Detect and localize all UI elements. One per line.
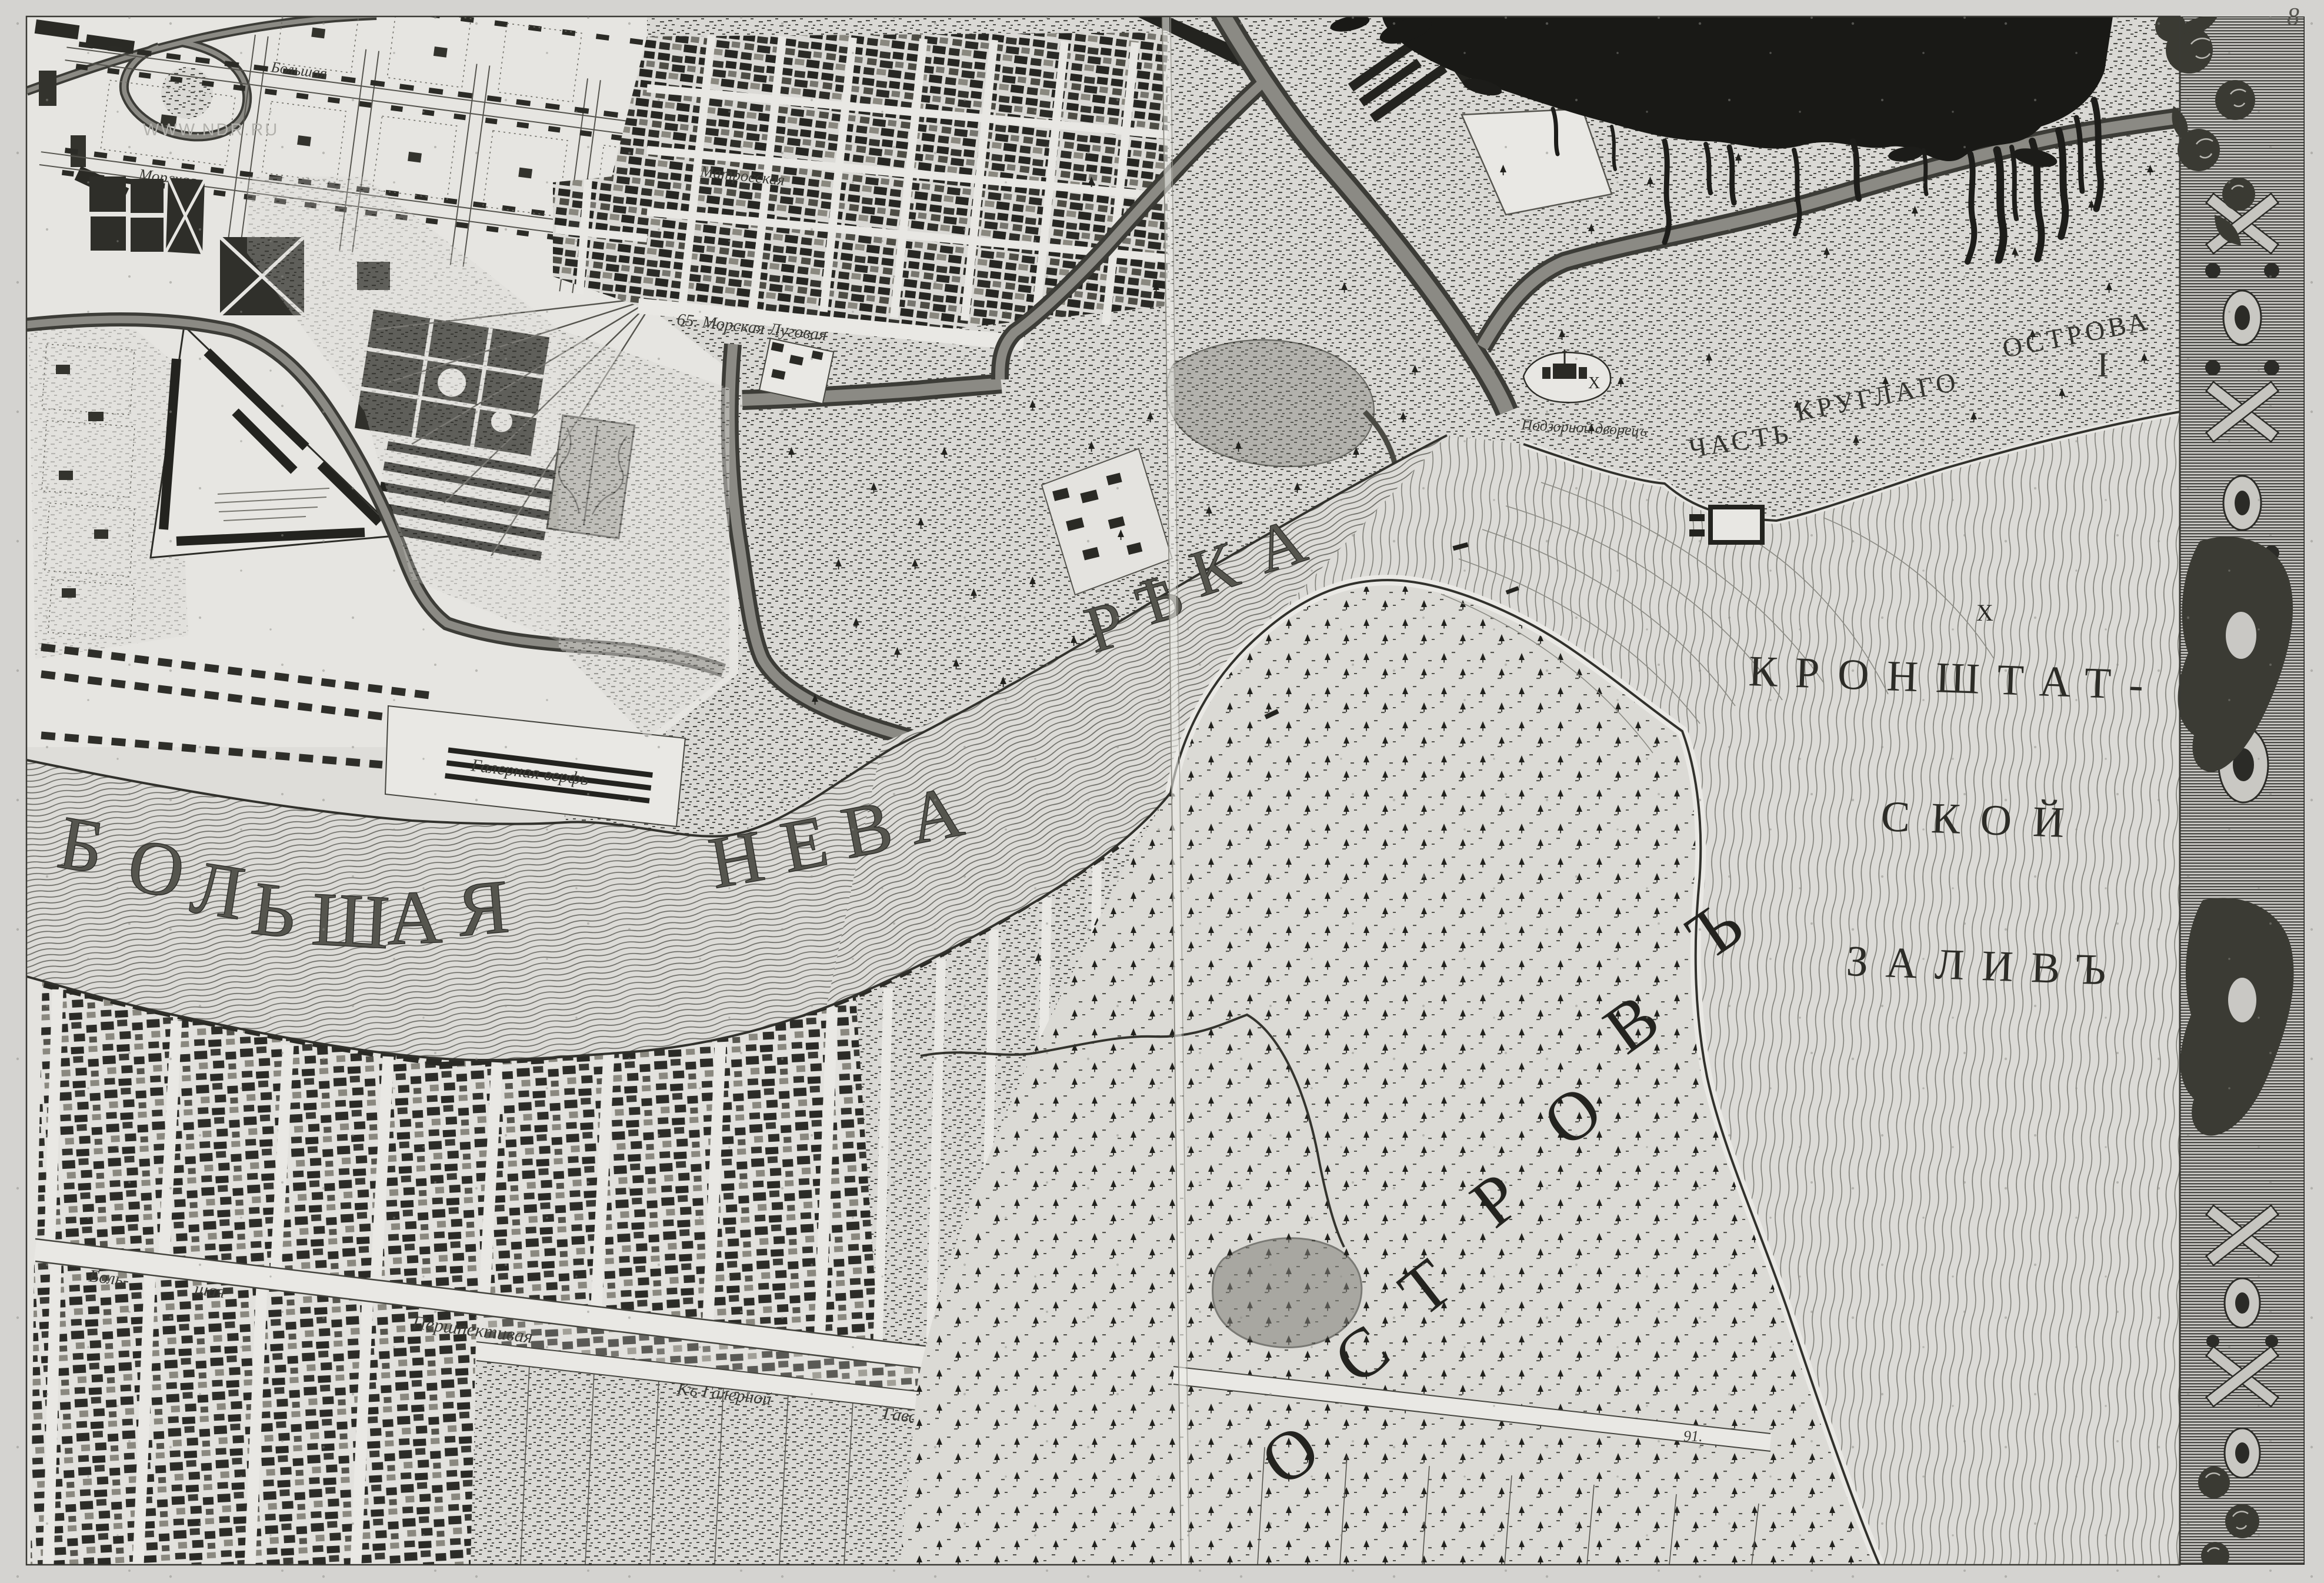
svg-text:8: 8 — [2287, 4, 2299, 31]
